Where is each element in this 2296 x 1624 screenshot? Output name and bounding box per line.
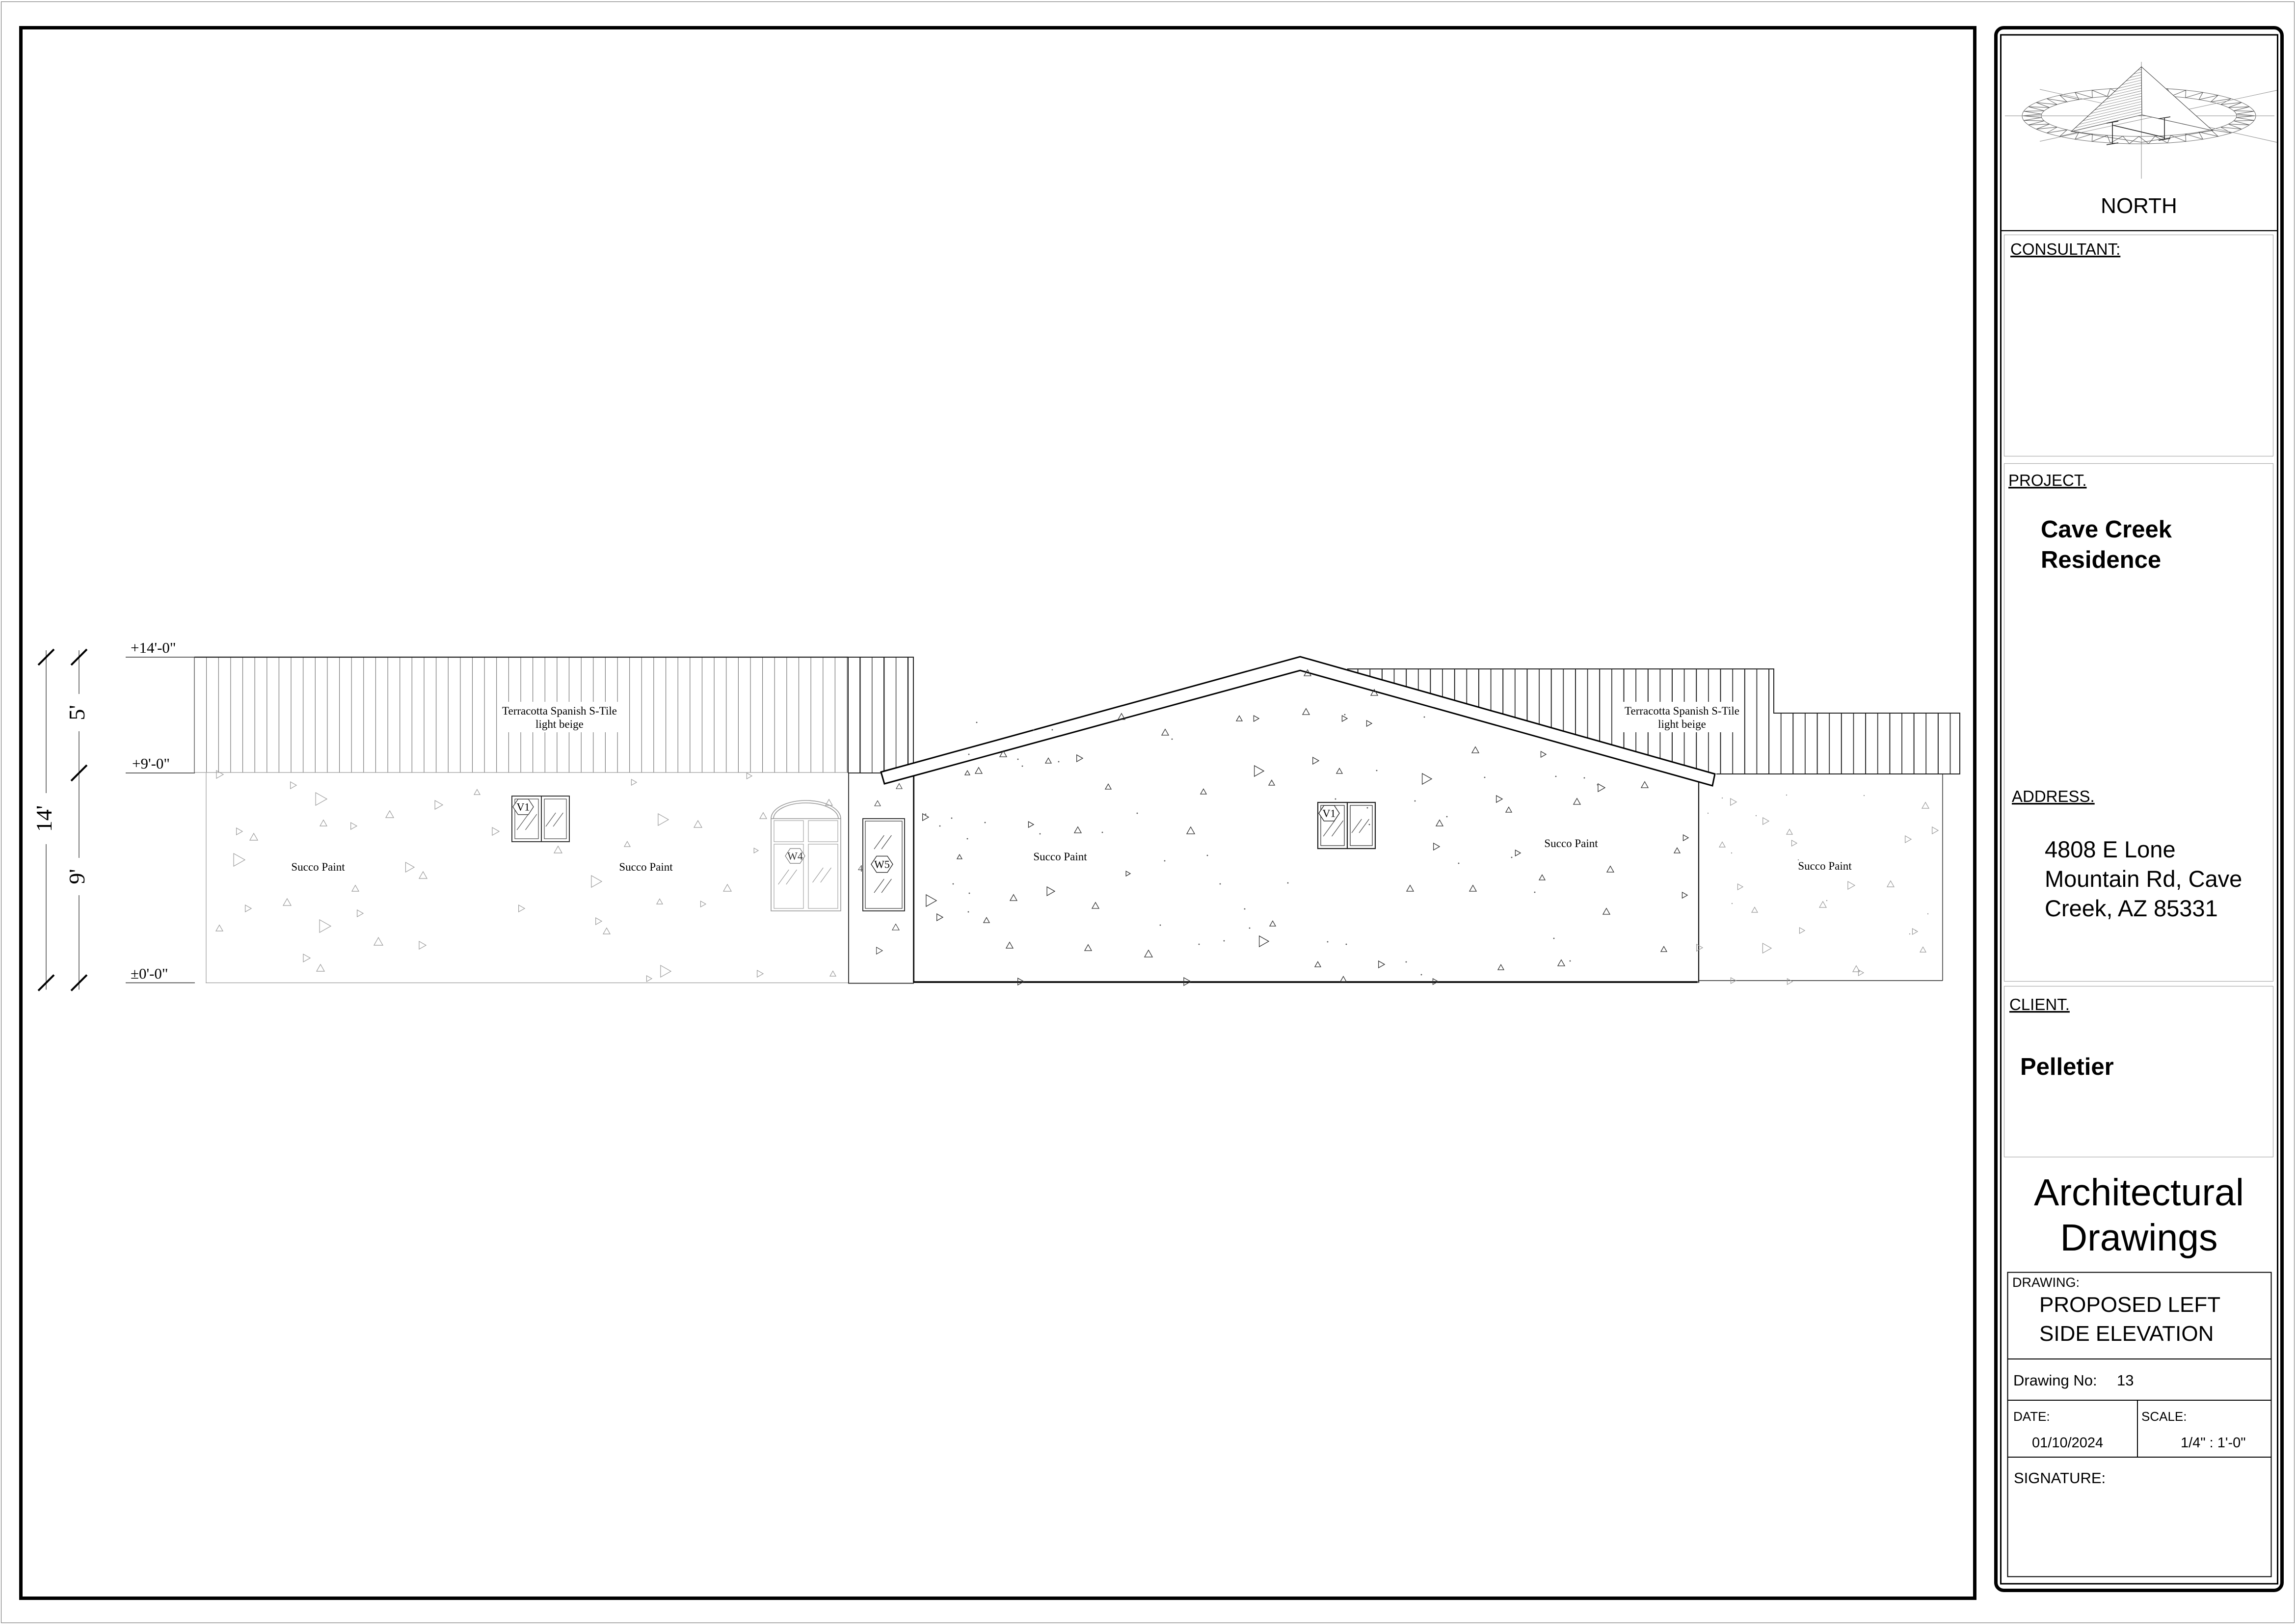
svg-text:ADDRESS.: ADDRESS.: [2012, 787, 2095, 805]
svg-text:Drawings: Drawings: [2060, 1217, 2218, 1259]
svg-text:SIDE ELEVATION: SIDE ELEVATION: [2039, 1322, 2214, 1346]
svg-text:9': 9': [64, 869, 89, 884]
svg-text:4: 4: [858, 863, 863, 874]
svg-text:V1: V1: [517, 801, 530, 813]
svg-text:Terracotta Spanish S-Tile: Terracotta Spanish S-Tile: [502, 705, 617, 717]
svg-text:NORTH: NORTH: [2101, 194, 2177, 218]
svg-text:light beige: light beige: [1658, 718, 1706, 730]
svg-text:Succo Paint: Succo Paint: [291, 861, 345, 873]
svg-text:14': 14': [31, 805, 56, 832]
svg-text:Cave Creek: Cave Creek: [2041, 516, 2172, 543]
svg-text:1/4" : 1'-0": 1/4" : 1'-0": [2181, 1435, 2246, 1451]
svg-text:PROJECT.: PROJECT.: [2008, 471, 2087, 489]
svg-text:W5: W5: [874, 858, 890, 871]
svg-text:Terracotta Spanish S-Tile: Terracotta Spanish S-Tile: [1625, 705, 1739, 717]
svg-text:+9'-0": +9'-0": [132, 755, 170, 772]
svg-text:CLIENT.: CLIENT.: [2009, 995, 2070, 1013]
svg-text:PROPOSED LEFT: PROPOSED LEFT: [2039, 1293, 2220, 1317]
svg-text:V1: V1: [1323, 807, 1336, 820]
svg-text:Succo Paint: Succo Paint: [619, 861, 673, 873]
svg-text:Creek, AZ 85331: Creek, AZ 85331: [2045, 895, 2218, 921]
svg-text:Succo Paint: Succo Paint: [1544, 837, 1598, 850]
svg-text:Succo Paint: Succo Paint: [1798, 860, 1852, 872]
svg-text:01/10/2024: 01/10/2024: [2032, 1435, 2103, 1451]
svg-text:+14'-0": +14'-0": [131, 639, 176, 656]
svg-text:Pelletier: Pelletier: [2020, 1054, 2114, 1080]
svg-text:Residence: Residence: [2041, 547, 2161, 573]
svg-text:DRAWING:: DRAWING:: [2012, 1275, 2080, 1290]
svg-text:SCALE:: SCALE:: [2141, 1409, 2187, 1424]
svg-text:Architectural: Architectural: [2034, 1171, 2244, 1214]
svg-text:light beige: light beige: [535, 718, 584, 730]
svg-text:Mountain Rd, Cave: Mountain Rd, Cave: [2045, 866, 2242, 892]
svg-text:Succo Paint: Succo Paint: [1033, 851, 1087, 863]
svg-text:CONSULTANT:: CONSULTANT:: [2010, 240, 2120, 258]
svg-text:Drawing No:: Drawing No:: [2013, 1372, 2097, 1389]
svg-text:DATE:: DATE:: [2013, 1409, 2050, 1424]
svg-text:5': 5': [64, 705, 89, 720]
svg-text:4808 E Lone: 4808 E Lone: [2045, 836, 2176, 862]
svg-text:W4: W4: [787, 850, 803, 862]
svg-text:SIGNATURE:: SIGNATURE:: [2014, 1469, 2106, 1487]
svg-text:±0'-0": ±0'-0": [131, 965, 168, 982]
svg-text:13: 13: [2117, 1372, 2134, 1389]
